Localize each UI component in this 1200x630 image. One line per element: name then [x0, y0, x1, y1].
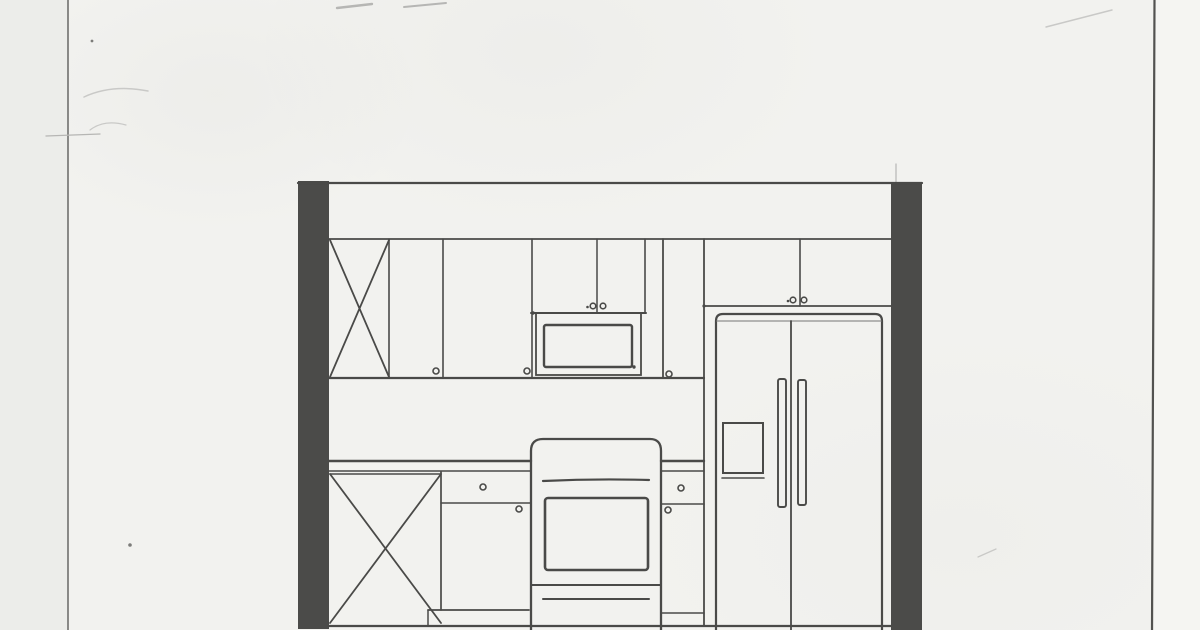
base-knob-3	[678, 485, 684, 491]
base-knob-4	[665, 507, 671, 513]
pencil-smudge-top-1	[337, 4, 372, 8]
cabinet-knob-1	[433, 368, 439, 374]
microwave-body	[536, 313, 641, 375]
cabinet-knob-6	[790, 297, 796, 303]
cabinet-knob-dot-2	[787, 300, 790, 303]
ink-pool-dot-1	[531, 311, 534, 314]
cabinet-knob-dot-1	[586, 306, 589, 309]
microwave-dot	[632, 365, 635, 368]
paper-speck-2	[91, 40, 94, 43]
fridge-handle-right	[798, 380, 806, 505]
paper-right-edge-line	[1152, 0, 1155, 630]
base-knob-1	[480, 484, 486, 490]
wall-section-left	[298, 181, 329, 629]
range-outline	[531, 439, 661, 630]
fridge-dispenser-panel	[723, 423, 763, 473]
cabinet-knob-5	[666, 371, 672, 377]
paper-speck-1	[128, 543, 132, 547]
pencil-mark-bottom-right	[978, 549, 996, 557]
scanned-sketch-page	[0, 0, 1200, 630]
cabinet-knob-7	[801, 297, 807, 303]
pencil-scratch-top-right	[1046, 10, 1112, 27]
cabinet-knob-2	[524, 368, 530, 374]
oven-window	[545, 498, 648, 570]
cabinet-knob-4	[600, 303, 606, 309]
microwave-window	[544, 325, 632, 367]
wall-section-right	[891, 183, 922, 630]
pencil-dash-left	[46, 134, 100, 136]
pencil-smudge-top-2	[404, 3, 446, 7]
fridge-handle-left	[778, 379, 786, 507]
ink-pool-dot-2	[702, 304, 705, 307]
range-control-line	[543, 479, 649, 481]
pencil-smudge-left-2	[90, 123, 126, 130]
cabinet-knob-3	[590, 303, 596, 309]
pencil-smudge-left-1	[84, 89, 148, 97]
kitchen-elevation-drawing	[0, 0, 1200, 630]
base-knob-2	[516, 506, 522, 512]
